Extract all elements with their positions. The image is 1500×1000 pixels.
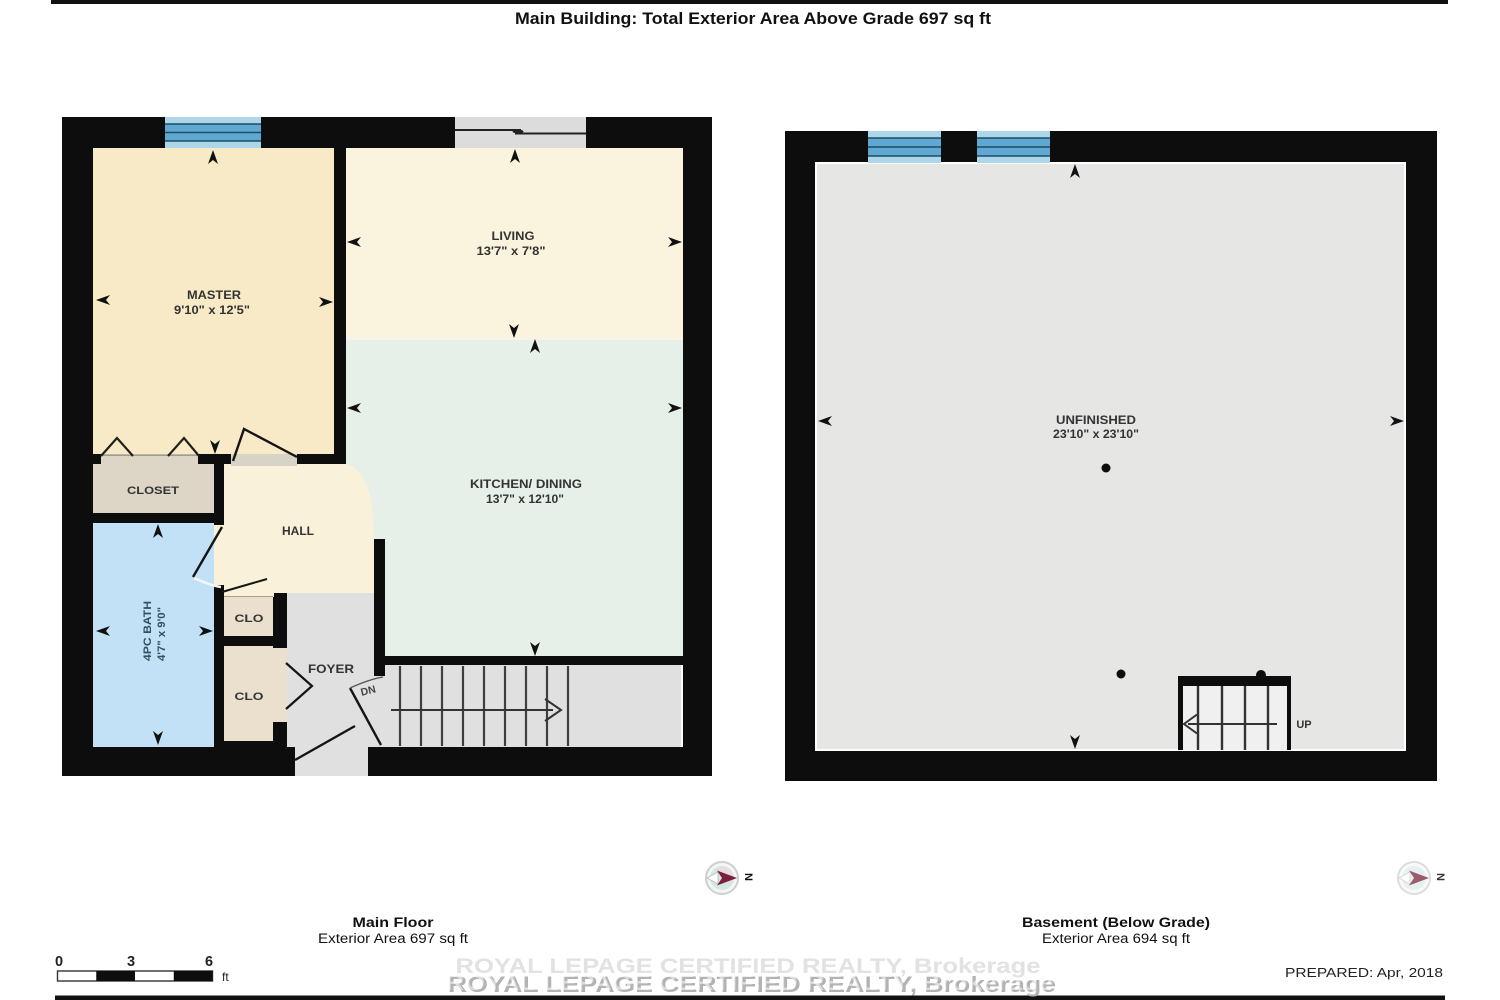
svg-text:0: 0 [55, 954, 63, 970]
svg-text:LIVING: LIVING [492, 229, 535, 243]
svg-text:CLO: CLO [235, 613, 265, 625]
svg-text:ROYAL LEPAGE CERTIFIED REALTY,: ROYAL LEPAGE CERTIFIED REALTY, Brokerage [445, 970, 1053, 995]
svg-text:FOYER: FOYER [308, 664, 355, 676]
svg-text:UP: UP [1296, 719, 1311, 731]
svg-text:Main Building: Total Exterior: Main Building: Total Exterior Area Above… [515, 10, 992, 28]
svg-text:6: 6 [205, 954, 213, 970]
svg-text:MASTER: MASTER [187, 288, 241, 302]
svg-text:PREPARED: Apr, 2018: PREPARED: Apr, 2018 [1285, 965, 1443, 980]
svg-text:9'10" x 12'5": 9'10" x 12'5" [174, 303, 250, 317]
svg-text:N: N [742, 873, 754, 881]
svg-text:13'7" x 12'10": 13'7" x 12'10" [486, 492, 564, 506]
svg-text:ft: ft [222, 970, 229, 984]
svg-text:4'7" x 9'0": 4'7" x 9'0" [156, 607, 168, 661]
svg-text:3: 3 [127, 954, 135, 970]
svg-text:N: N [1434, 873, 1446, 881]
svg-text:CLOSET: CLOSET [127, 485, 179, 497]
svg-text:HALL: HALL [282, 524, 314, 538]
svg-text:UNFINISHED: UNFINISHED [1056, 413, 1136, 427]
svg-text:13'7" x 7'8": 13'7" x 7'8" [477, 244, 546, 258]
svg-text:Basement (Below Grade): Basement (Below Grade) [1022, 915, 1210, 930]
svg-text:CLO: CLO [235, 691, 265, 703]
svg-text:Main Floor: Main Floor [353, 915, 435, 930]
svg-text:23'10" x 23'10": 23'10" x 23'10" [1053, 427, 1139, 441]
svg-text:Exterior Area 697 sq ft: Exterior Area 697 sq ft [318, 931, 468, 946]
svg-text:4PC BATH: 4PC BATH [142, 601, 154, 661]
svg-text:KITCHEN/ DINING: KITCHEN/ DINING [470, 477, 582, 491]
svg-text:Exterior Area 694 sq ft: Exterior Area 694 sq ft [1042, 931, 1190, 946]
